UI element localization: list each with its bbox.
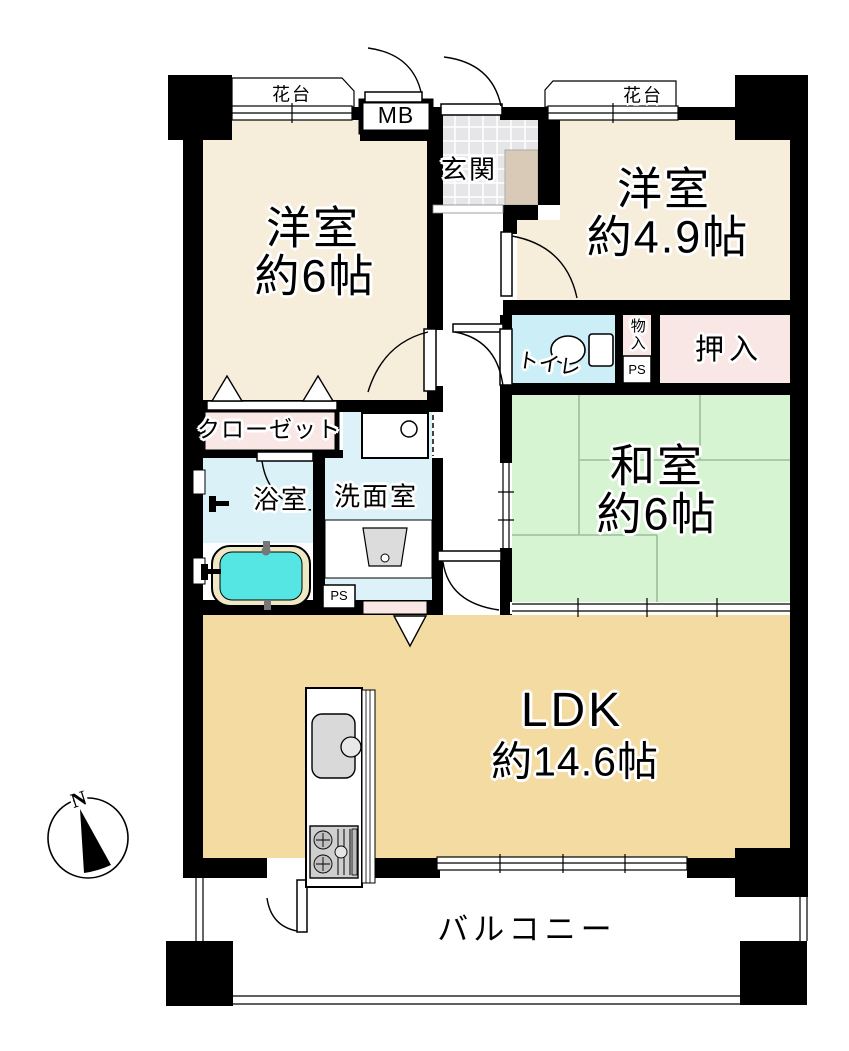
- pink-strip: [363, 601, 427, 614]
- label-ps-lower: PS: [330, 589, 347, 603]
- label-oshiire: 押入: [695, 335, 763, 365]
- label-balcony: バルコニー: [437, 914, 616, 946]
- wall-right: [790, 140, 808, 858]
- entrance-door-leaf: [441, 104, 502, 115]
- label-ldk-name: LDK: [521, 686, 623, 736]
- fixture-vanity-sink: [325, 520, 432, 578]
- pillar-bottom-right: [740, 941, 807, 1005]
- floorplan-drawing: [0, 0, 849, 1051]
- label-closet: クローゼット: [197, 418, 341, 442]
- label-western49-size: 約4.9帖: [587, 215, 750, 262]
- fixture-washer: [362, 413, 428, 458]
- label-japanese-name: 和室: [610, 444, 704, 491]
- wall-bottom: [183, 858, 267, 878]
- hall-door-leaf: [453, 324, 503, 332]
- label-ps-upper: PS: [628, 363, 645, 377]
- label-washroom: 洗面室: [334, 483, 418, 510]
- shoe-cabinet: [505, 150, 538, 205]
- washitsu-entry-slider: [500, 463, 512, 548]
- mb-door-leaf: [365, 92, 422, 102]
- label-entrance: 玄関: [441, 156, 497, 183]
- label-meter-box: MB: [378, 104, 415, 128]
- balcony-door-arc: [267, 898, 297, 931]
- western49-door-leaf: [501, 232, 512, 296]
- ldk-door-leaf: [438, 551, 501, 561]
- western6-door-leaf: [424, 329, 436, 391]
- label-western49-name: 洋室: [617, 167, 711, 214]
- floorplan-page: 花台 MB 玄関 花台 洋室 約6帖 洋室 約4.9帖 トイレ 物入 PS 押入…: [0, 0, 849, 1051]
- entrance-step: [433, 205, 503, 213]
- pillar-top-right: [735, 75, 808, 140]
- wall-left: [183, 135, 203, 858]
- label-monoire: 物入: [629, 318, 645, 352]
- fixture-kitchen: [306, 688, 375, 887]
- balcony-railing: [233, 996, 740, 1004]
- label-bath: 浴室: [253, 486, 309, 513]
- bath-door-leaf: [257, 452, 313, 461]
- pillar-bottom-left: [166, 941, 233, 1006]
- fixture-bathtub: [212, 541, 310, 610]
- label-japanese-size: 約6帖: [596, 492, 717, 539]
- label-flower-stand-right: 花台: [623, 87, 663, 106]
- room-ldk: [203, 615, 790, 858]
- label-ldk-size: 約14.6帖: [491, 741, 659, 784]
- closet-door-strip: [207, 401, 337, 410]
- label-western6-name: 洋室: [266, 206, 360, 253]
- label-western6-size: 約6帖: [254, 254, 375, 301]
- label-flower-stand-left: 花台: [272, 86, 312, 105]
- compass: [48, 798, 128, 878]
